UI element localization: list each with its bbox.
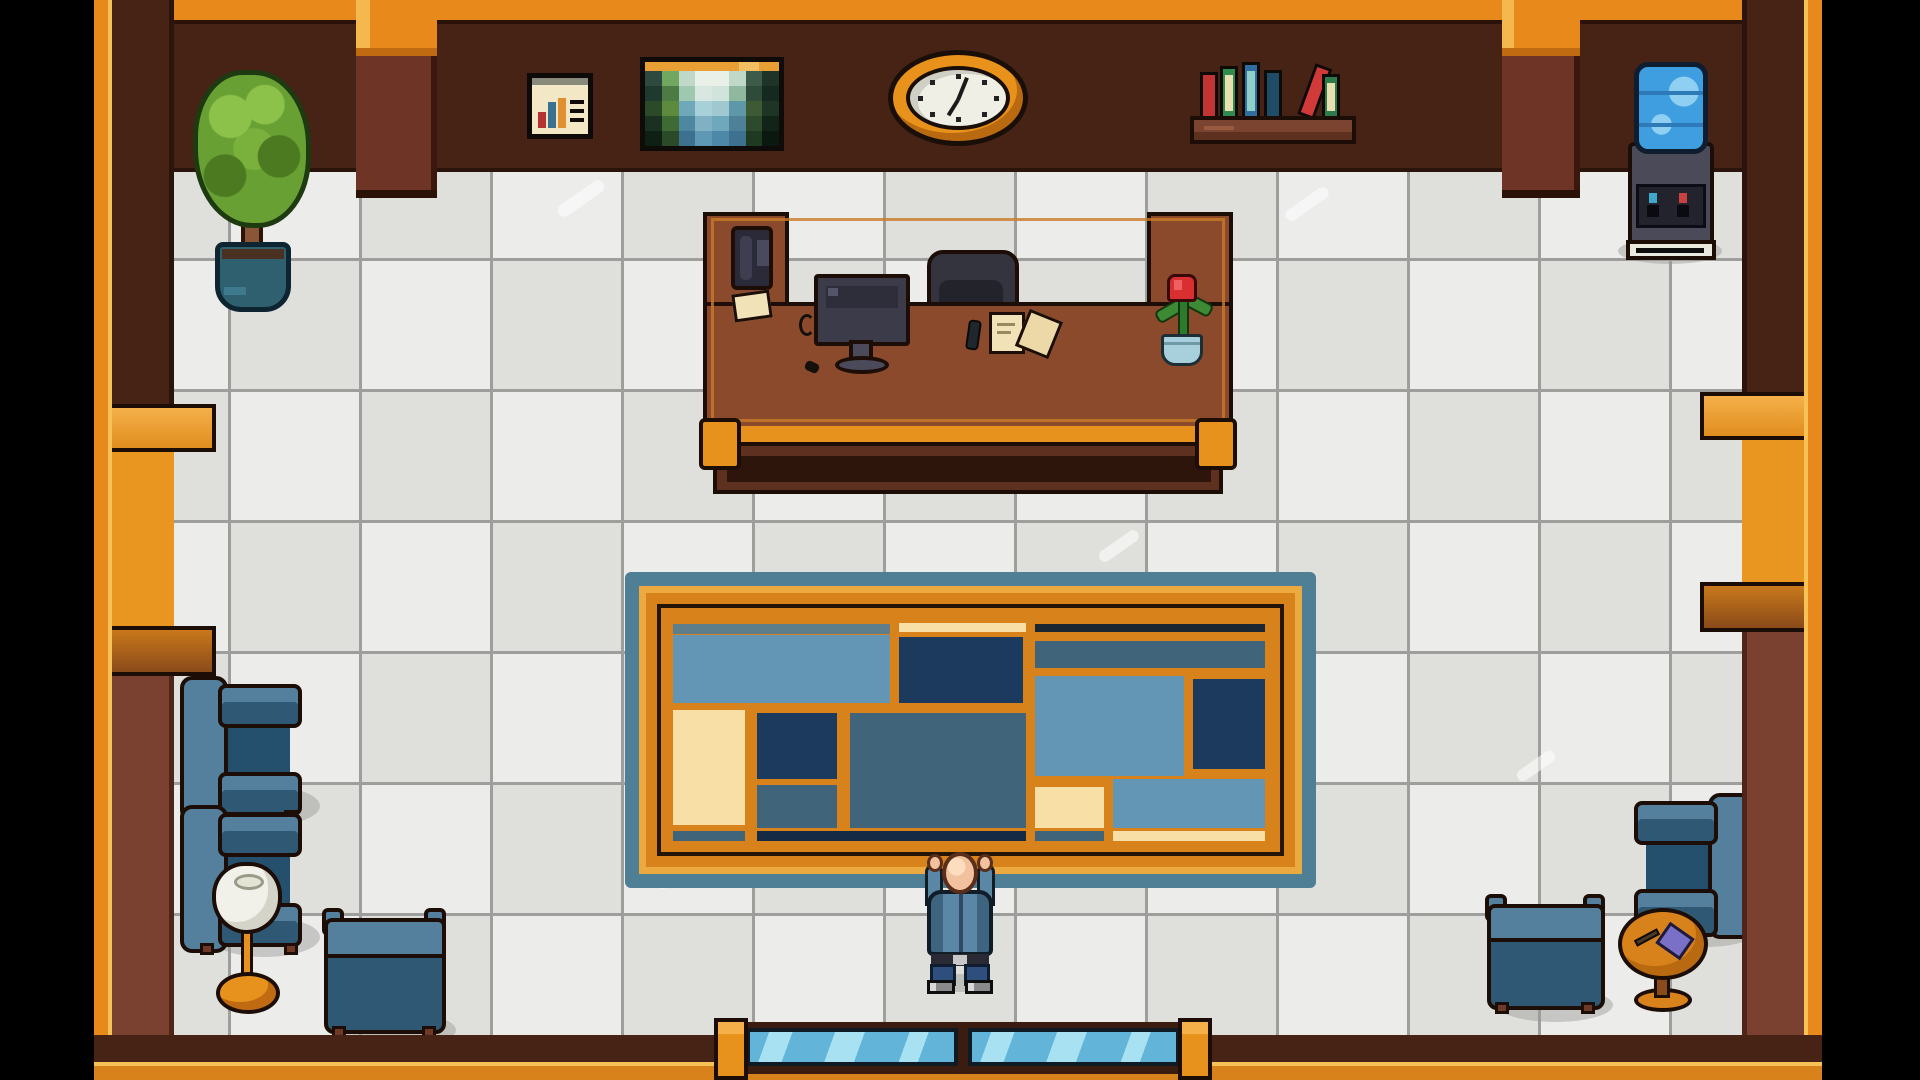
door-post-left <box>714 1018 748 1080</box>
floor-tile <box>362 392 493 523</box>
painting-pixel <box>729 131 746 146</box>
painting-pixel <box>645 86 662 102</box>
table-top <box>1618 908 1708 980</box>
potted-tree <box>193 70 311 318</box>
painting-pixel <box>746 116 763 132</box>
floor-tile <box>1672 261 1742 392</box>
floor-tile <box>493 392 624 523</box>
painting-pixel <box>695 101 712 117</box>
painting-pixel <box>662 116 679 132</box>
floor-tile <box>1541 523 1672 654</box>
painting-pixel <box>645 131 662 146</box>
floor-tile <box>1410 261 1541 392</box>
letterbox-left <box>0 0 94 1080</box>
floor-tile <box>1541 392 1672 523</box>
painting-pixel <box>712 71 729 87</box>
painting-canvas <box>645 71 779 146</box>
character-hand-right <box>977 854 993 872</box>
rug-field <box>657 604 1284 856</box>
painting-pixel <box>729 71 746 87</box>
painting-pixel <box>662 101 679 117</box>
book-stripe <box>1225 75 1233 111</box>
rug-block <box>757 831 1026 841</box>
armchair-bottom-right <box>1485 888 1607 1016</box>
landscape-painting <box>640 57 784 151</box>
bar-chart-frame <box>527 73 593 139</box>
left-wall <box>94 0 174 1080</box>
painting-pixel <box>645 101 662 117</box>
bookshelf <box>1190 58 1356 144</box>
armchair-bottom-left <box>322 900 448 1042</box>
rug-block <box>1035 624 1264 633</box>
painting-pixel <box>762 86 779 102</box>
floor-tile <box>1410 654 1541 785</box>
floor-tile <box>1279 392 1410 523</box>
rug-orange-band <box>646 593 1295 867</box>
painting-pixel <box>762 131 779 146</box>
game-stage <box>0 0 1920 1080</box>
rug-block <box>1035 676 1184 776</box>
painting-pixel <box>695 86 712 102</box>
rug-block <box>757 785 837 828</box>
painting-pixel <box>762 116 779 132</box>
floor-lamp <box>212 862 282 1014</box>
door-glass-pane <box>968 1028 1180 1066</box>
character-shirt <box>927 890 993 956</box>
rug-block <box>1113 831 1265 841</box>
tree-canopy <box>193 70 311 228</box>
painting-pixel <box>695 116 712 132</box>
floor-tile <box>231 523 362 654</box>
rug-block <box>1035 641 1264 668</box>
wall-pillar-left <box>356 0 437 198</box>
water-cooler[interactable] <box>1624 62 1720 262</box>
book-stripe <box>1327 83 1335 111</box>
character-hand-left <box>927 854 943 872</box>
floor-tile <box>1541 654 1672 785</box>
painting-pixel <box>746 101 763 117</box>
rug-block <box>1035 787 1103 827</box>
floor-tile <box>231 392 362 523</box>
floor-tile <box>1672 654 1742 785</box>
lamp-shade <box>212 862 282 934</box>
side-table <box>1618 908 1708 1014</box>
cooler-tray <box>1626 240 1716 260</box>
painting-pixel <box>712 116 729 132</box>
books <box>1200 58 1350 120</box>
rug-block <box>850 713 1026 828</box>
book <box>1200 72 1218 120</box>
left-pillar-cap-bottom <box>94 626 216 676</box>
floor-tile <box>362 785 493 916</box>
painting-pixel <box>645 116 662 132</box>
cable <box>799 314 815 336</box>
chart-text-line <box>570 118 584 122</box>
clock-hand-minute <box>956 77 969 101</box>
painting-pixel <box>695 71 712 87</box>
tree-pot <box>215 242 291 312</box>
floor-tile <box>362 654 493 785</box>
book <box>1242 62 1260 120</box>
painting-pixel <box>662 86 679 102</box>
phone-handset <box>740 236 752 280</box>
painting-pixel <box>729 101 746 117</box>
painting-pixel <box>729 116 746 132</box>
floor-tile <box>493 261 624 392</box>
painting-pixel <box>746 131 763 146</box>
book <box>1220 66 1238 120</box>
painting-pixel <box>712 101 729 117</box>
chart-text-line <box>570 100 584 104</box>
chart-bar <box>558 98 566 128</box>
letterbox-right <box>1822 0 1920 1080</box>
desk-foot-left <box>699 418 741 470</box>
floor-tile <box>1541 261 1672 392</box>
shelf-board <box>1190 116 1356 144</box>
floor-tile <box>1279 261 1410 392</box>
cooler-face <box>1636 184 1706 228</box>
painting-pixel <box>746 86 763 102</box>
lamp-base <box>216 972 280 1014</box>
desk-note <box>731 289 773 322</box>
rug-block <box>673 710 744 825</box>
floor-tile <box>1279 916 1410 1035</box>
wall-pillar-right <box>1502 0 1580 198</box>
floor-tile <box>1410 523 1541 654</box>
floor-tile <box>493 916 624 1035</box>
cooler-bottle <box>1634 62 1708 154</box>
rug-block <box>673 635 890 703</box>
area-rug <box>625 572 1316 888</box>
painting-pixel <box>679 116 696 132</box>
left-pillar-cap-top <box>94 404 216 452</box>
right-wall <box>1742 0 1822 1080</box>
armchair-left-upper <box>180 676 306 824</box>
painting-pixel <box>679 131 696 146</box>
desk-drawer-slot <box>727 456 1211 482</box>
glass-exit-door[interactable] <box>714 1018 1212 1080</box>
painting-pixel <box>746 71 763 87</box>
floor-tile <box>493 785 624 916</box>
chart-bar <box>548 102 556 128</box>
office-room[interactable] <box>94 0 1822 1080</box>
book <box>1264 70 1282 120</box>
book-stripe <box>1247 71 1255 111</box>
painting-pixel <box>712 131 729 146</box>
desk-trim <box>711 218 1225 422</box>
table-book <box>1655 922 1694 961</box>
clock-face <box>906 66 1010 130</box>
rug-block <box>673 624 890 634</box>
painting-pixel <box>762 71 779 87</box>
desk-plant <box>1153 272 1209 368</box>
floor-tile <box>493 523 624 654</box>
door-post-right <box>1178 1018 1212 1080</box>
painting-top-rail <box>645 62 779 71</box>
painting-pixel <box>695 131 712 146</box>
desk-foot-right <box>1195 418 1237 470</box>
floor-tile <box>362 523 493 654</box>
painting-pixel <box>679 101 696 117</box>
desk-drawer-panel <box>713 442 1223 494</box>
painting-pixel <box>662 131 679 146</box>
office-desk <box>703 210 1233 510</box>
chart-text-line <box>570 109 584 113</box>
monitor-base <box>835 356 889 374</box>
character-shoe-left <box>927 980 955 994</box>
rug-block <box>1035 831 1103 841</box>
door-panes <box>714 1018 1212 1080</box>
desk-phone <box>731 226 773 290</box>
monitor-light <box>828 288 838 296</box>
character-shoe-right <box>965 980 993 994</box>
phone-keys <box>757 240 769 266</box>
desk-monitor <box>814 274 910 346</box>
rug-gold-band <box>639 586 1302 874</box>
rug-block <box>1113 779 1265 828</box>
rug-block <box>757 713 837 779</box>
floor-tile <box>362 261 493 392</box>
painting-pixel <box>679 86 696 102</box>
clock-hand-hour <box>947 99 960 116</box>
plant-pot <box>1161 334 1203 366</box>
book <box>1322 74 1340 120</box>
player-character[interactable] <box>925 850 995 994</box>
painting-pixel <box>662 71 679 87</box>
character-head <box>942 852 978 894</box>
chart-bar <box>538 112 546 128</box>
rug-block <box>1193 679 1264 769</box>
door-glass-pane <box>746 1028 958 1066</box>
painting-pixel <box>729 86 746 102</box>
floor-tile <box>1410 392 1541 523</box>
floor-tile <box>493 654 624 785</box>
chart-text-lines <box>570 92 586 132</box>
rug-block <box>899 623 1026 633</box>
painting-pixel <box>762 101 779 117</box>
rug-block <box>673 831 744 841</box>
painting-pixel <box>645 71 662 87</box>
plant-tulip <box>1167 274 1197 302</box>
painting-pixel <box>712 86 729 102</box>
chart-top-strip <box>532 78 588 85</box>
painting-pixel <box>679 71 696 87</box>
wall-clock <box>888 50 1028 146</box>
rug-block <box>899 637 1023 703</box>
